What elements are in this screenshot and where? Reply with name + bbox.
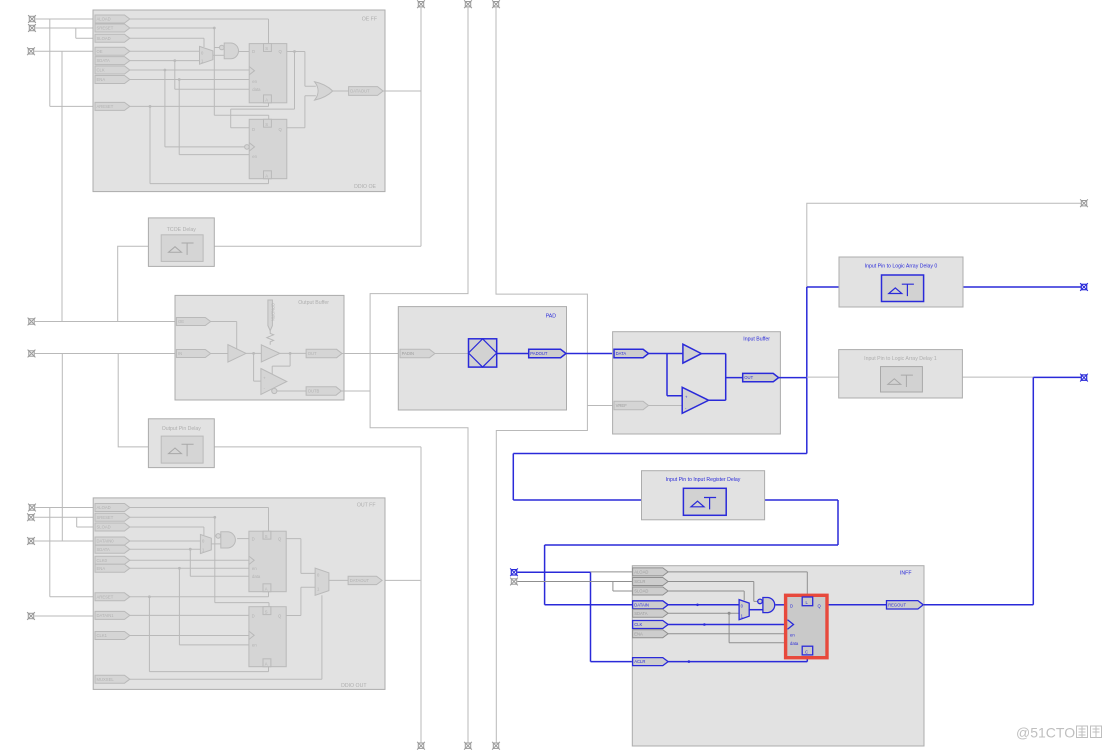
- svg-text:Output Buffer: Output Buffer: [298, 300, 329, 306]
- svg-text:en: en: [252, 79, 257, 84]
- svg-text:PADOUT: PADOUT: [530, 351, 548, 356]
- svg-text:DATA: DATA: [616, 351, 627, 356]
- svg-text:DATAOUT: DATAOUT: [350, 89, 370, 94]
- svg-text:PAD: PAD: [546, 314, 557, 320]
- svg-text:OUT FF: OUT FF: [357, 503, 376, 509]
- svg-text:Input Pin to Logic Array Delay: Input Pin to Logic Array Delay 1: [864, 356, 937, 362]
- svg-text:DATAIN0: DATAIN0: [97, 539, 115, 544]
- svg-text:DATAIN: DATAIN: [634, 602, 649, 607]
- svg-text:SLOAD: SLOAD: [97, 36, 111, 41]
- svg-text:SLOAD: SLOAD: [97, 525, 111, 530]
- svg-text:SRESET: SRESET: [97, 26, 114, 31]
- svg-text:D: D: [790, 604, 793, 609]
- svg-text:D: D: [252, 537, 255, 542]
- svg-text:+: +: [263, 376, 266, 381]
- svg-text:Input Pin to Logic Array Delay: Input Pin to Logic Array Delay 0: [865, 264, 938, 270]
- svg-text:SDATA: SDATA: [97, 58, 111, 63]
- svg-text:DATAOUT: DATAOUT: [350, 578, 370, 583]
- svg-text:INFF: INFF: [900, 571, 912, 577]
- svg-text:D: D: [252, 127, 255, 132]
- svg-text:A: A: [265, 661, 268, 666]
- svg-text:S: S: [265, 46, 268, 51]
- svg-text:CLK: CLK: [97, 68, 105, 73]
- svg-text:Output Pin Delay: Output Pin Delay: [162, 426, 202, 432]
- svg-text:D: D: [252, 614, 255, 619]
- svg-text:MUXSEL: MUXSEL: [97, 677, 115, 682]
- svg-text:IN: IN: [178, 351, 182, 356]
- svg-text:Input Buffer: Input Buffer: [743, 337, 770, 343]
- svg-text:en: en: [252, 154, 257, 159]
- svg-text:SLOAD: SLOAD: [634, 589, 648, 594]
- svg-text:data: data: [790, 641, 799, 646]
- svg-text:CLK: CLK: [634, 622, 642, 627]
- svg-text:S: S: [265, 122, 268, 127]
- svg-text:ENA: ENA: [634, 631, 643, 636]
- svg-text:TCOE Delay: TCOE Delay: [167, 227, 197, 233]
- svg-text:OUT: OUT: [744, 375, 753, 380]
- svg-text:ENA: ENA: [97, 77, 106, 82]
- svg-text:VREF: VREF: [616, 403, 628, 408]
- svg-text:en: en: [252, 643, 257, 648]
- svg-text:A: A: [265, 98, 268, 103]
- svg-text:OE: OE: [97, 49, 103, 54]
- svg-text:ALOAD: ALOAD: [634, 570, 648, 575]
- svg-text:REGOUT: REGOUT: [888, 602, 906, 607]
- svg-text:S: S: [265, 609, 268, 614]
- svg-text:OE: OE: [178, 319, 184, 324]
- svg-text:data: data: [252, 574, 261, 579]
- svg-text:OUT: OUT: [308, 351, 317, 356]
- svg-text:ARESET: ARESET: [97, 594, 114, 599]
- svg-text:SDATA: SDATA: [97, 547, 111, 552]
- svg-text:SDATA: SDATA: [634, 611, 648, 616]
- svg-text:DATAIN1: DATAIN1: [97, 613, 115, 618]
- svg-text:ALOAD: ALOAD: [97, 505, 111, 510]
- svg-text:Input Pin to Input Register De: Input Pin to Input Register Delay: [666, 477, 741, 483]
- svg-text:A: A: [265, 586, 268, 591]
- svg-text:ACLR: ACLR: [634, 659, 645, 664]
- svg-text:SRESET: SRESET: [97, 515, 114, 520]
- svg-text:OPNDRN: OPNDRN: [271, 303, 276, 321]
- svg-text:PADIN: PADIN: [402, 351, 415, 356]
- svg-text:DDIO OE: DDIO OE: [354, 184, 376, 190]
- svg-text:@51CTO: @51CTO: [1016, 725, 1075, 741]
- svg-text:DDIO OUT: DDIO OUT: [341, 683, 367, 689]
- svg-text:en: en: [790, 633, 795, 638]
- svg-text:data: data: [252, 87, 261, 92]
- svg-text:SCLR: SCLR: [634, 579, 645, 584]
- svg-text:ALOAD: ALOAD: [97, 17, 111, 22]
- svg-text:OE FF: OE FF: [362, 17, 377, 23]
- svg-text:S: S: [265, 534, 268, 539]
- svg-text:OUTB: OUTB: [308, 389, 320, 394]
- svg-text:A: A: [265, 173, 268, 178]
- svg-text:C: C: [805, 649, 808, 654]
- svg-text:ENA: ENA: [97, 566, 106, 571]
- svg-text:ARESET: ARESET: [97, 104, 114, 109]
- svg-text:D: D: [252, 49, 255, 54]
- svg-text:CLK1: CLK1: [97, 633, 108, 638]
- svg-text:en: en: [252, 566, 257, 571]
- svg-text:CLK0: CLK0: [97, 558, 108, 563]
